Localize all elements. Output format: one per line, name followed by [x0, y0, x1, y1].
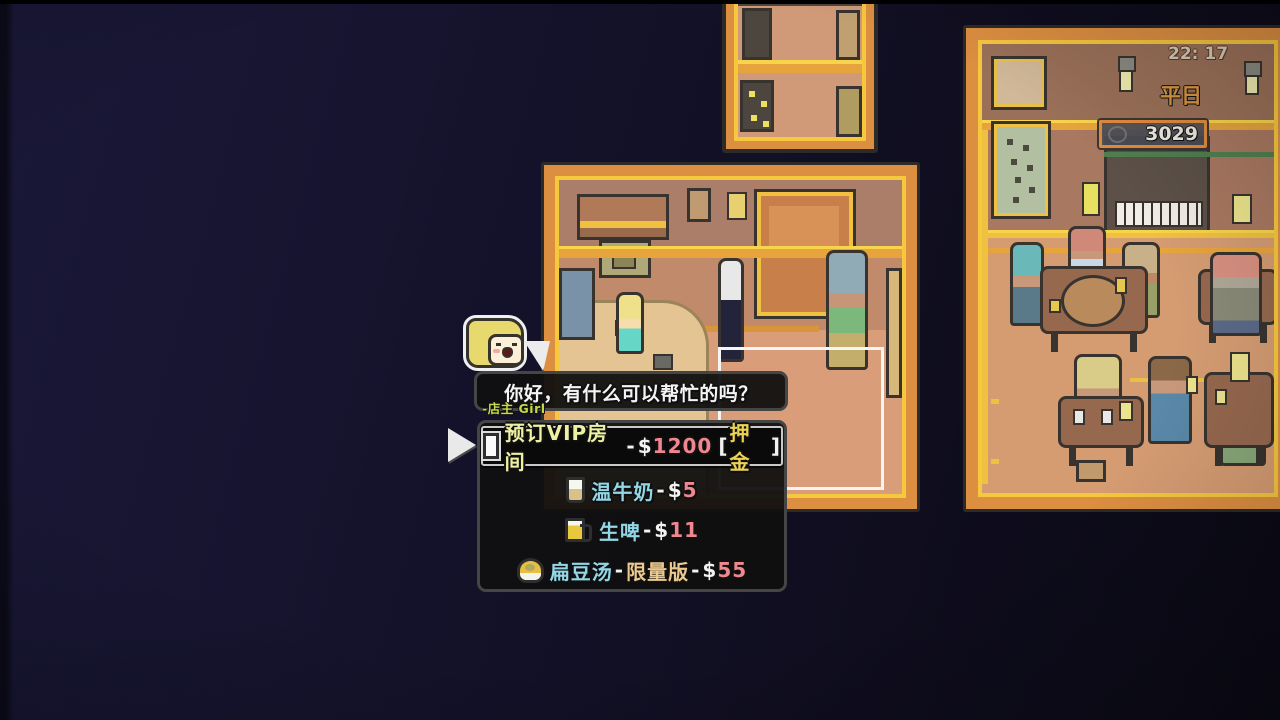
avatar-eyes — [496, 343, 501, 346]
stool — [1076, 460, 1106, 482]
clock: 22: 17 — [1168, 44, 1228, 64]
dollar-sign: $ — [654, 518, 669, 542]
milk-icon — [566, 477, 585, 503]
day-label: 平日 — [1160, 80, 1202, 110]
npc-receptionist — [616, 292, 644, 354]
menu-item-warm-milk[interactable]: 温牛奶-$5 — [480, 472, 784, 508]
blue-cabinet — [559, 268, 595, 340]
trim-dashes — [991, 399, 999, 404]
separator: - — [643, 518, 652, 542]
separator: - — [691, 558, 700, 582]
item-price: 5 — [683, 478, 698, 502]
dollar-sign: $ — [668, 478, 683, 502]
avatar-blush — [493, 349, 500, 353]
shelf — [740, 80, 774, 132]
drink — [1119, 401, 1133, 421]
table — [1204, 372, 1274, 448]
table — [1040, 266, 1148, 334]
coin-icon — [1108, 126, 1127, 143]
item-tag: 押金 — [729, 417, 769, 475]
bed — [577, 194, 669, 240]
item-name: 生啤 — [599, 516, 641, 545]
drink — [1049, 299, 1061, 313]
notice-board — [994, 124, 1048, 216]
game-screen: 22: 17 平日 3029 你好，有什么可以帮忙的吗？ -店主 Girl 预订… — [0, 0, 1280, 720]
choice-menu: 预订VIP房间-$1200[押金] 温牛奶-$5 生啤-$11 扁豆汤-限量版-… — [477, 420, 787, 592]
menu-card — [1232, 194, 1252, 224]
item-name: 预订VIP房间 — [505, 417, 625, 475]
drink — [1073, 409, 1085, 425]
separator: - — [626, 434, 635, 458]
menu-item-draft-beer[interactable]: 生啤-$11 — [480, 512, 784, 548]
room-upper-floor — [722, 0, 878, 153]
room-interior — [982, 44, 1274, 493]
door-icon — [483, 433, 499, 459]
money-value: 3029 — [1127, 123, 1204, 145]
separator: - — [615, 558, 624, 582]
room-interior — [738, 0, 862, 137]
patron — [1210, 252, 1262, 336]
piano-keys — [1115, 201, 1203, 227]
dollar-sign: $ — [638, 434, 653, 458]
wardrobe — [742, 8, 772, 60]
drink — [1115, 277, 1127, 294]
door-lower — [836, 86, 862, 137]
door-upper — [836, 10, 860, 60]
item-name: 扁豆汤 — [550, 556, 613, 585]
drink-held — [1186, 376, 1198, 394]
tall-cabinet — [886, 268, 902, 398]
menu-card — [1230, 352, 1250, 382]
dollar-sign: $ — [702, 558, 717, 582]
drink — [1215, 389, 1227, 405]
item-name: 温牛奶 — [591, 476, 654, 505]
bucket — [653, 354, 673, 370]
shelf-items — [749, 91, 755, 97]
item-price: 11 — [669, 518, 699, 542]
floor-trim-1 — [982, 230, 1274, 238]
bracket: [ — [718, 434, 728, 458]
wall-line — [738, 2, 862, 6]
bracket: ] — [771, 434, 781, 458]
window — [994, 59, 1044, 107]
drink — [1101, 409, 1113, 425]
wall-lamp-candle — [1245, 75, 1259, 95]
left-wall-trim — [982, 130, 988, 484]
floor-band — [738, 60, 862, 73]
room-tavern — [963, 25, 1280, 512]
wall-lamp-candle — [1119, 70, 1133, 92]
item-tag: 限量版 — [626, 556, 689, 585]
soup-icon — [517, 558, 544, 583]
garland — [1104, 152, 1274, 157]
menu-item-vip-room[interactable]: 预订VIP房间-$1200[押金] — [481, 426, 783, 466]
avatar-face — [488, 334, 524, 366]
picture-frame — [687, 188, 711, 222]
avatar-mouth — [502, 347, 513, 358]
item-price: 1200 — [653, 434, 713, 458]
menu-item-lentil-soup[interactable]: 扁豆汤-限量版-$55 — [480, 552, 784, 588]
beer-icon — [565, 518, 585, 542]
notice-card — [727, 192, 747, 220]
separator: - — [656, 478, 665, 502]
patron — [1010, 242, 1044, 326]
menu-card — [1082, 182, 1100, 216]
selection-cursor-icon — [448, 428, 476, 462]
patron — [1148, 356, 1192, 444]
speaker-name: -店主 Girl — [482, 398, 546, 417]
item-price: 55 — [717, 558, 747, 582]
money-panel: 3029 — [1099, 120, 1207, 148]
table — [1058, 396, 1144, 448]
speaker-avatar — [466, 316, 536, 376]
